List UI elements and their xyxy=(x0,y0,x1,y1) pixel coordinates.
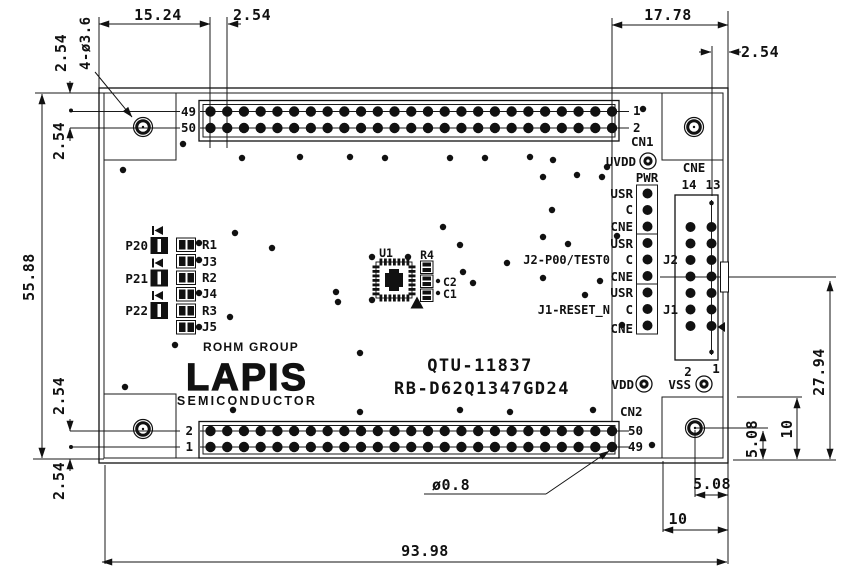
cn1-pin1-label: 1 xyxy=(633,103,641,118)
callout-mount-hole-dia: 4-ø3.6 xyxy=(78,16,94,70)
corner-keepout-bottom-left xyxy=(104,394,176,458)
cn1-pin2-label: 2 xyxy=(633,120,641,135)
p22-label: P22 xyxy=(125,303,148,318)
j1-signal-callout: J1-RESET_N xyxy=(538,303,610,318)
vss-label: VSS xyxy=(668,377,691,392)
dim-left-bottom-b: 2.54 xyxy=(50,462,68,500)
drawing-canvas: 15.24 2.54 17.78 2.54 2.54 2.54 55.88 2.… xyxy=(0,0,850,583)
j1-pin-c: C xyxy=(625,302,633,317)
p21-label: P21 xyxy=(125,271,148,286)
cne-col14-label: 14 xyxy=(681,177,696,192)
dim-top-right-offset: 2.54 xyxy=(741,43,779,61)
dim-left-edge-b: 2.54 xyxy=(50,122,68,160)
cn2-name: CN2 xyxy=(620,404,643,419)
uvdd-label: UVDD xyxy=(606,154,636,169)
dim-right-height: 27.94 xyxy=(810,348,828,396)
r2-label: R2 xyxy=(202,270,217,285)
pwr-pin-usr: USR xyxy=(610,186,633,201)
j1-name: J1 xyxy=(663,302,678,317)
r1-label: R1 xyxy=(202,237,217,252)
u1-label: U1 xyxy=(379,246,393,260)
cn2-pin50-label: 50 xyxy=(628,423,643,438)
dim-right-v10: 10 xyxy=(778,419,796,438)
j2-name: J2 xyxy=(663,252,678,267)
j2-signal-callout: J2-P00/TEST0 xyxy=(523,253,610,267)
cne-col13-label: 13 xyxy=(705,177,720,192)
semiconductor-text: SEMICONDUCTOR xyxy=(177,394,317,408)
c1-label: C1 xyxy=(443,287,457,301)
lapis-logo: LAPIS xyxy=(186,357,308,399)
j5-label: J5 xyxy=(202,319,217,334)
cn2-pin1-label: 1 xyxy=(185,439,193,454)
component-labels: U1 R4 C2 C1 P20 P21 P22 R1 J3 R2 J4 R3 J… xyxy=(125,237,457,334)
r3-label: R3 xyxy=(202,303,217,318)
r4-label: R4 xyxy=(420,248,434,262)
vss-pin1-label: 1 xyxy=(712,361,720,376)
cn1-pin49-label: 49 xyxy=(181,104,196,119)
pcb-mechanical-drawing: 15.24 2.54 17.78 2.54 2.54 2.54 55.88 2.… xyxy=(0,0,850,583)
dim-board-width: 93.98 xyxy=(401,542,449,560)
j3-label: J3 xyxy=(202,254,217,269)
corner-keepout-top-right xyxy=(662,93,723,160)
pwr-label: PWR xyxy=(636,170,659,185)
dim-right-v508: 5.08 xyxy=(743,420,761,458)
dim-bottom-h508: 5.08 xyxy=(693,475,731,493)
cn2-pin49-label: 49 xyxy=(628,439,643,454)
corner-keepout-top-left xyxy=(104,93,176,160)
cne-name: CNE xyxy=(683,160,706,175)
rohm-group-text: ROHM GROUP xyxy=(203,340,299,354)
dim-left-bottom-a: 2.54 xyxy=(50,377,68,415)
cn1-pin50-label: 50 xyxy=(181,120,196,135)
j1-pin-usr: USR xyxy=(610,285,633,300)
j4-label: J4 xyxy=(202,286,217,301)
p20-label: P20 xyxy=(125,238,148,253)
vss-pin2-label: 2 xyxy=(684,364,692,379)
j1-pin-cne: CNE xyxy=(610,321,633,336)
callout-pin-hole-dia: ø0.8 xyxy=(432,476,470,494)
part-number-text: RB-D62Q1347GD24 xyxy=(394,379,570,399)
board-number-text: QTU-11837 xyxy=(427,356,533,376)
j2-pin-cne: CNE xyxy=(610,269,633,284)
j2-pin-c: C xyxy=(625,252,633,267)
cn2-pin2-label: 2 xyxy=(185,423,193,438)
cn1-name: CN1 xyxy=(631,134,654,149)
dim-bottom-h10: 10 xyxy=(668,510,687,528)
pwr-pin-cne: CNE xyxy=(610,219,633,234)
dim-board-height: 55.88 xyxy=(20,253,38,301)
j2-pin-usr: USR xyxy=(610,236,633,251)
dim-left-edge-a: 2.54 xyxy=(52,34,70,72)
components xyxy=(151,226,434,334)
pwr-pin-c: C xyxy=(625,202,633,217)
dim-top-right-width: 17.78 xyxy=(644,6,692,24)
vdd-label: VDD xyxy=(611,377,634,392)
dim-top-pitch: 2.54 xyxy=(233,6,271,24)
silkscreen-text: ROHM GROUP LAPIS SEMICONDUCTOR QTU-11837… xyxy=(177,340,570,408)
dim-top-left-width: 15.24 xyxy=(134,6,182,24)
board-edge-notch xyxy=(721,262,729,292)
